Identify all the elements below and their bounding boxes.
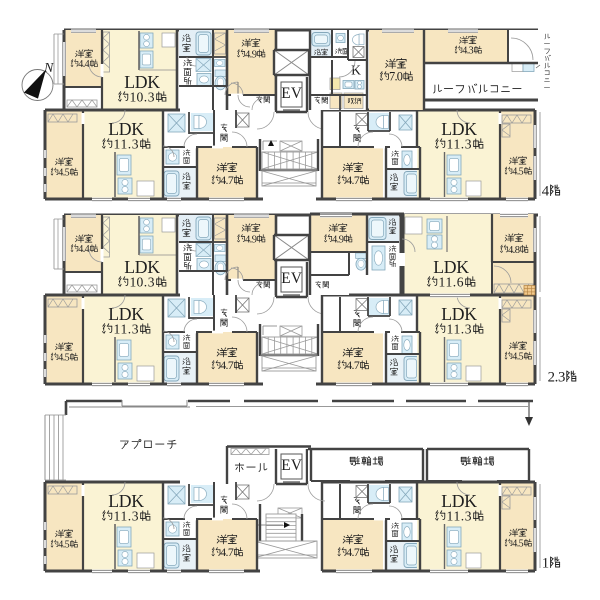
- svg-text:V: V: [291, 270, 302, 287]
- svg-text:1: 1: [130, 90, 137, 105]
- svg-text:5: 5: [65, 539, 70, 550]
- svg-text:1: 1: [121, 137, 128, 152]
- svg-text:1: 1: [542, 556, 549, 572]
- svg-text:E: E: [281, 457, 290, 474]
- svg-text:5: 5: [65, 167, 70, 178]
- svg-text:V: V: [291, 85, 302, 102]
- svg-text:5: 5: [65, 352, 70, 363]
- svg-text:1: 1: [439, 275, 446, 290]
- svg-text:1: 1: [454, 137, 461, 152]
- svg-text:7: 7: [354, 545, 360, 559]
- svg-text:.: .: [144, 90, 147, 105]
- svg-text:3: 3: [465, 137, 472, 152]
- svg-text:.: .: [461, 509, 464, 524]
- svg-text:9: 9: [339, 234, 344, 245]
- svg-text:.: .: [128, 322, 131, 337]
- svg-text:0: 0: [137, 275, 144, 290]
- svg-text:E: E: [281, 270, 290, 287]
- svg-text:9: 9: [252, 49, 257, 60]
- svg-text:.: .: [128, 509, 131, 524]
- svg-text:N: N: [43, 61, 54, 76]
- svg-text:6: 6: [457, 275, 464, 290]
- svg-text:7: 7: [354, 358, 360, 372]
- svg-text:1: 1: [121, 322, 128, 337]
- svg-text:7: 7: [228, 545, 234, 559]
- svg-text:7: 7: [354, 173, 360, 187]
- svg-text:4: 4: [542, 184, 550, 200]
- svg-text:3: 3: [132, 137, 139, 152]
- svg-text:7: 7: [228, 173, 234, 187]
- svg-text:E: E: [281, 85, 290, 102]
- svg-text:3: 3: [465, 509, 472, 524]
- svg-text:9: 9: [252, 234, 257, 245]
- svg-text:1: 1: [454, 509, 461, 524]
- svg-text:1: 1: [130, 275, 137, 290]
- svg-text:7: 7: [228, 358, 234, 372]
- svg-text:3: 3: [469, 45, 474, 56]
- svg-text:0: 0: [397, 70, 403, 84]
- svg-text:3: 3: [132, 509, 139, 524]
- svg-text:3: 3: [558, 370, 565, 386]
- svg-text:8: 8: [515, 245, 520, 256]
- svg-text:3: 3: [148, 90, 155, 105]
- svg-text:1: 1: [114, 137, 121, 152]
- svg-text:1: 1: [121, 509, 128, 524]
- svg-text:.: .: [461, 322, 464, 337]
- svg-text:.: .: [453, 275, 456, 290]
- svg-text:5: 5: [519, 538, 524, 549]
- svg-text:1: 1: [447, 322, 454, 337]
- svg-text:1: 1: [447, 509, 454, 524]
- svg-text:3: 3: [132, 322, 139, 337]
- svg-text:.: .: [461, 137, 464, 152]
- svg-text:3: 3: [148, 275, 155, 290]
- svg-text:1: 1: [446, 275, 453, 290]
- svg-text:V: V: [291, 457, 302, 474]
- svg-text:1: 1: [454, 322, 461, 337]
- svg-text:1: 1: [447, 137, 454, 152]
- svg-text:1: 1: [114, 322, 121, 337]
- svg-text:.: .: [144, 275, 147, 290]
- svg-text:.: .: [128, 137, 131, 152]
- svg-text:5: 5: [519, 166, 524, 177]
- svg-text:3: 3: [465, 322, 472, 337]
- svg-text:0: 0: [137, 90, 144, 105]
- svg-text:1: 1: [114, 509, 121, 524]
- svg-text:5: 5: [519, 351, 524, 362]
